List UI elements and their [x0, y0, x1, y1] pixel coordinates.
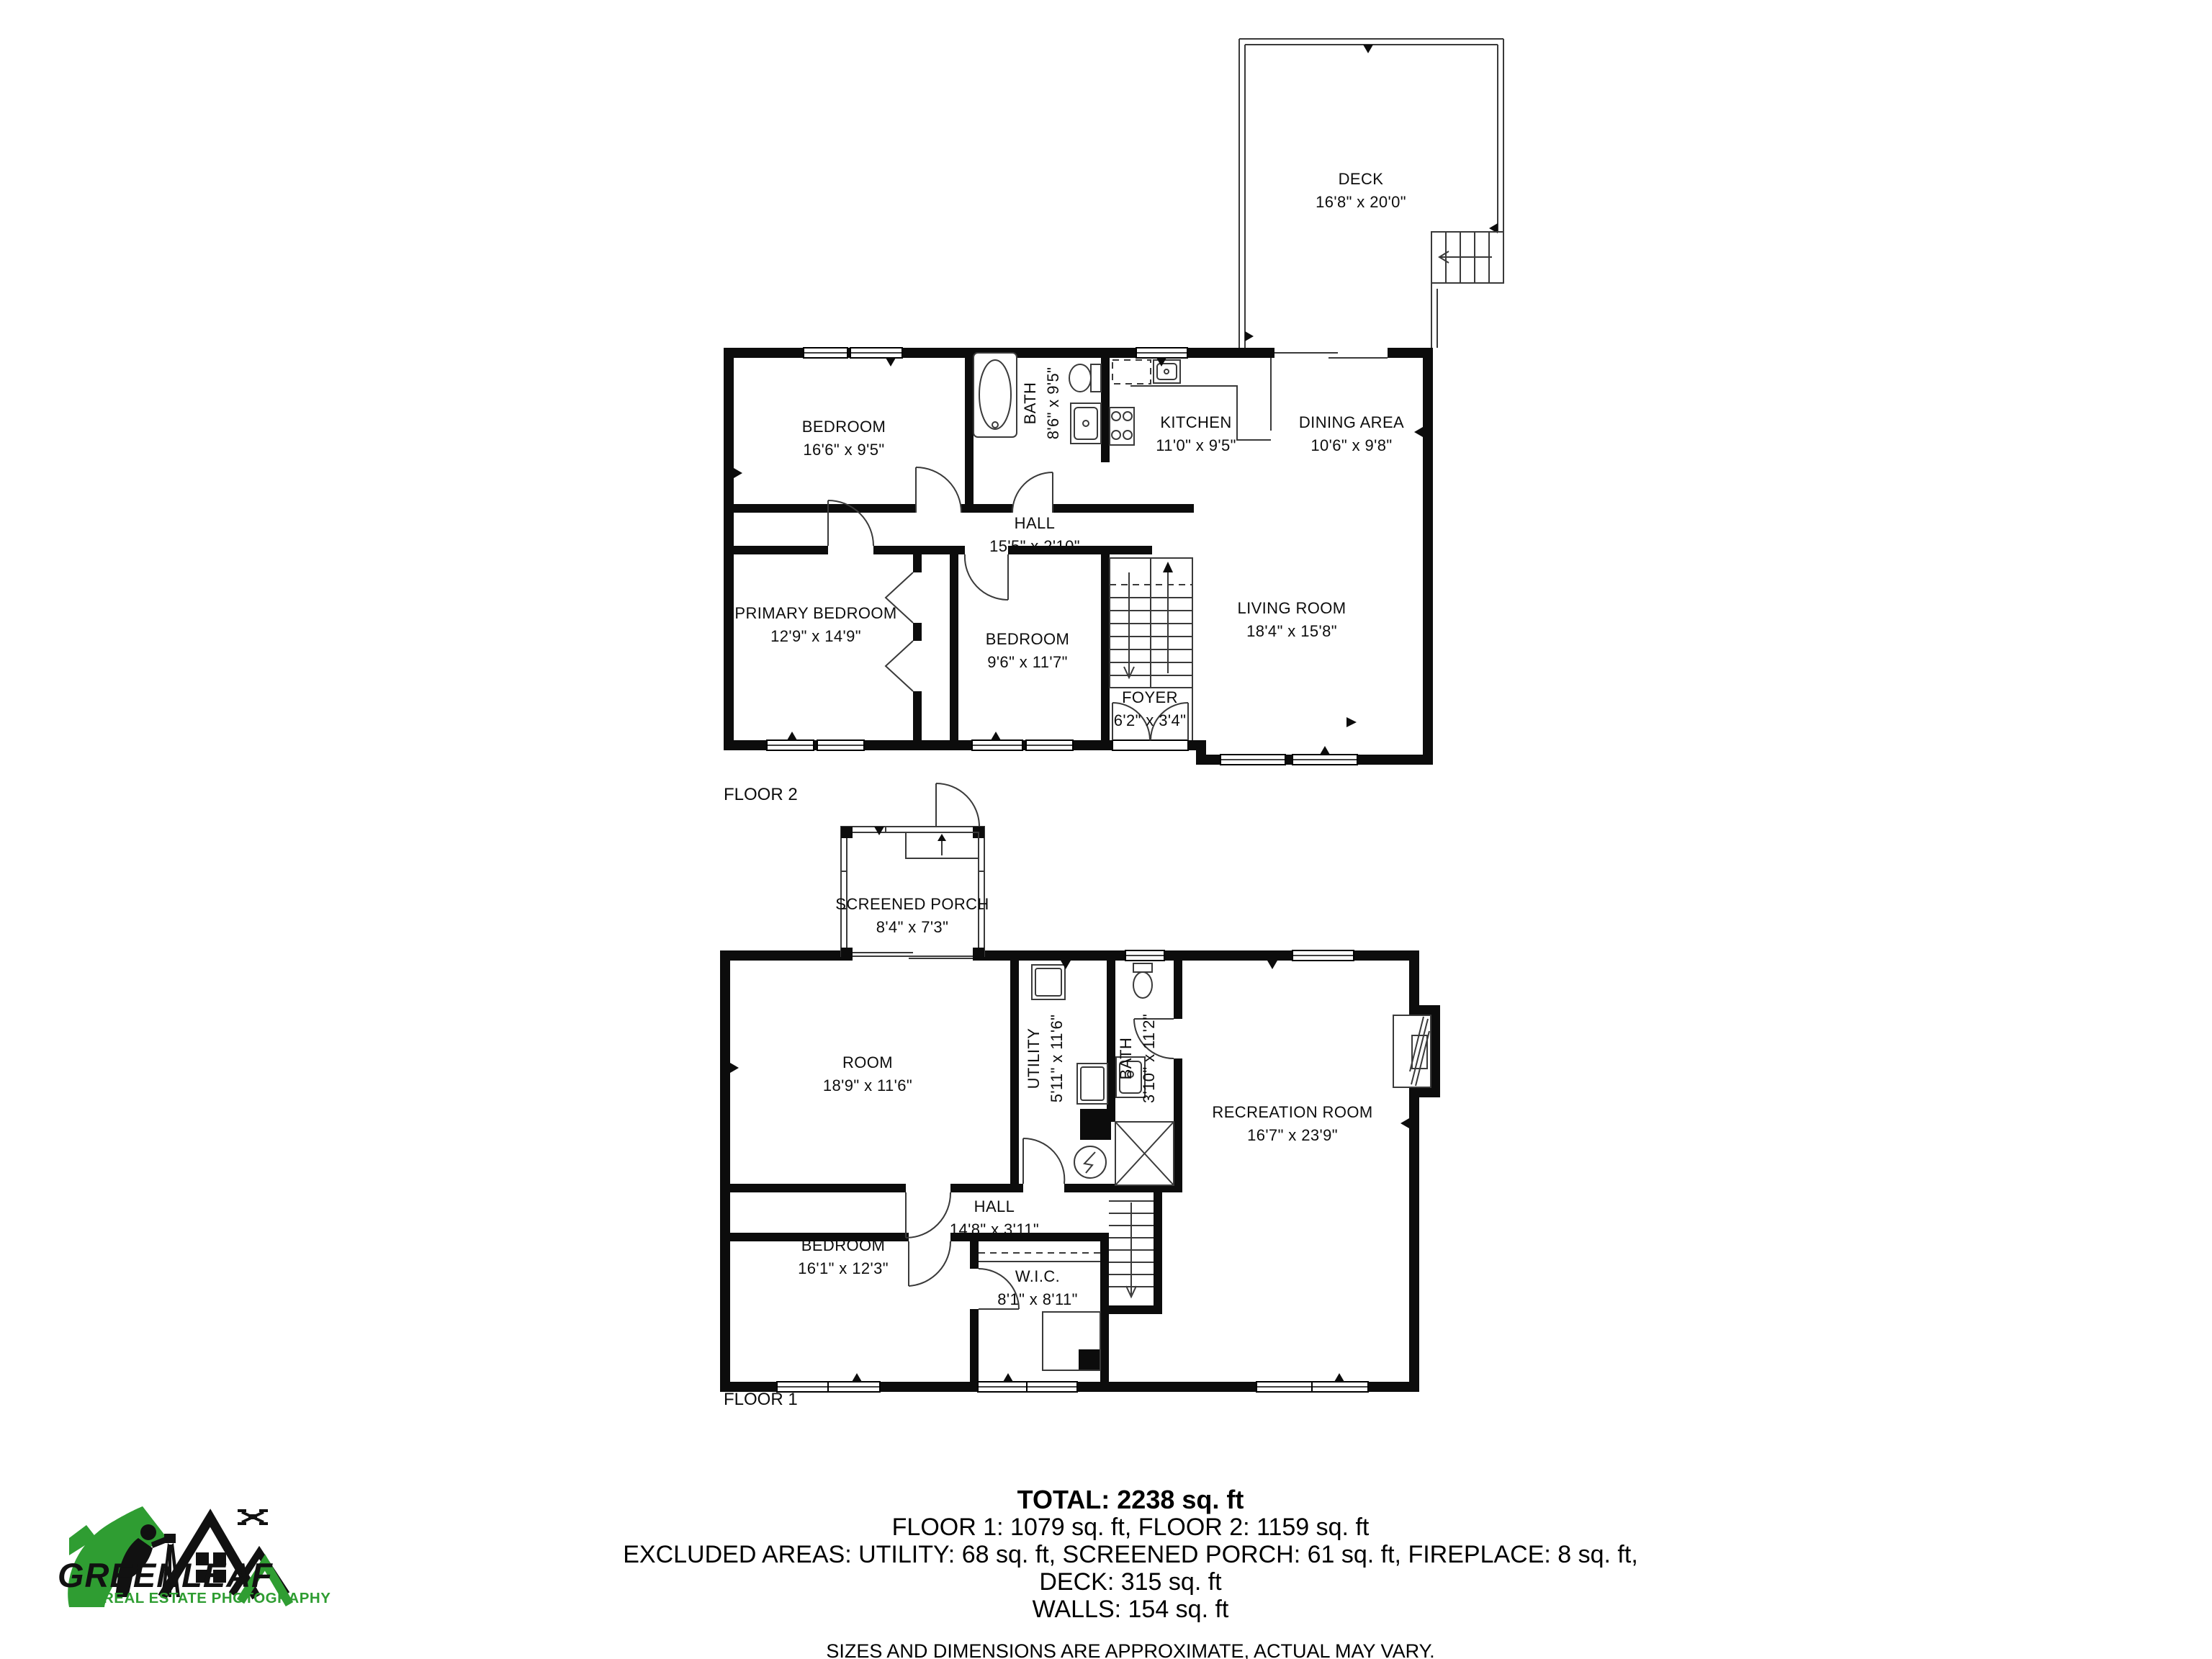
shower-icon	[1115, 1122, 1174, 1185]
summary-deck: DECK: 315 sq. ft	[1039, 1568, 1221, 1596]
label-f1-porch: SCREENED PORCH 8'4" x 7'3"	[835, 893, 989, 939]
greenleaf-logo: GREENLEAF REAL ESTATE PHOTOGRAPHY	[58, 1506, 331, 1607]
label-f2-bedroom1: BEDROOM 16'6" x 9'5"	[802, 415, 886, 462]
label-f1-wic: W.I.C. 8'1" x 8'11"	[997, 1265, 1078, 1311]
label-f2-dining: DINING AREA 10'6" x 9'8"	[1299, 411, 1404, 457]
floor2-title: FLOOR 2	[724, 785, 798, 805]
label-f1-bath: BATH 3'10" x 11'2"	[1115, 1014, 1161, 1103]
label-deck: DECK 16'8" x 20'0"	[1316, 168, 1406, 214]
summary-excluded: EXCLUDED AREAS: UTILITY: 68 sq. ft, SCRE…	[623, 1541, 1638, 1569]
label-f1-room: ROOM 18'9" x 11'6"	[823, 1051, 912, 1097]
summary-total: TOTAL: 2238 sq. ft	[1017, 1485, 1244, 1515]
label-f1-bedroom: BEDROOM 16'1" x 12'3"	[798, 1234, 889, 1280]
label-f2-kitchen: KITCHEN 11'0" x 9'5"	[1156, 411, 1236, 457]
floor1-walls	[720, 950, 1419, 1392]
drone-icon	[238, 1511, 268, 1524]
fireplace-icon	[1393, 1005, 1440, 1097]
washer-icon	[1032, 965, 1065, 999]
porch-step-arrow	[938, 834, 946, 841]
logo-title: GREENLEAF	[58, 1556, 273, 1594]
toilet-icon	[1069, 364, 1101, 392]
label-f2-hall: HALL 15'5" x 2'10"	[989, 512, 1080, 558]
stove-icon	[1110, 408, 1134, 445]
floorplan-sheet: GREENLEAF REAL ESTATE PHOTOGRAPHY DECK 1…	[0, 0, 2212, 1659]
floor1-stairs	[1109, 1201, 1154, 1297]
summary-disclaimer: SIZES AND DIMENSIONS ARE APPROXIMATE, AC…	[826, 1640, 1434, 1659]
floor1-title: FLOOR 1	[724, 1390, 798, 1410]
label-f2-bath: BATH 8'6" x 9'5"	[1019, 367, 1065, 440]
label-f1-hall: HALL 14'8" x 3'11"	[950, 1195, 1039, 1241]
water-heater-icon	[1074, 1146, 1106, 1178]
vanity-sink-icon	[1071, 403, 1101, 444]
stairs-up-arrow	[1163, 562, 1173, 572]
summary-floors: FLOOR 1: 1079 sq. ft, FLOOR 2: 1159 sq. …	[892, 1514, 1370, 1542]
label-f2-bedroom2: BEDROOM 9'6" x 11'7"	[986, 628, 1069, 674]
label-f1-utility: UTILITY 5'11" x 11'6"	[1022, 1015, 1069, 1103]
summary-walls: WALLS: 154 sq. ft	[1033, 1596, 1229, 1624]
floor1-windows	[777, 950, 1368, 1392]
label-f2-living: LIVING ROOM 18'4" x 15'8"	[1237, 597, 1346, 643]
toilet-icon	[1133, 963, 1152, 998]
label-f2-primary: PRIMARY BEDROOM 12'9" x 14'9"	[734, 602, 896, 648]
logo-subtitle: REAL ESTATE PHOTOGRAPHY	[103, 1590, 331, 1606]
deck-stairs	[1431, 232, 1503, 348]
label-f1-recreation: RECREATION ROOM 16'7" x 23'9"	[1212, 1101, 1372, 1147]
dryer-icon	[1077, 1064, 1107, 1104]
floorplan-drawing: GREENLEAF REAL ESTATE PHOTOGRAPHY	[0, 0, 2212, 1659]
label-f2-foyer: FOYER 6'2" x 3'4"	[1114, 686, 1187, 732]
